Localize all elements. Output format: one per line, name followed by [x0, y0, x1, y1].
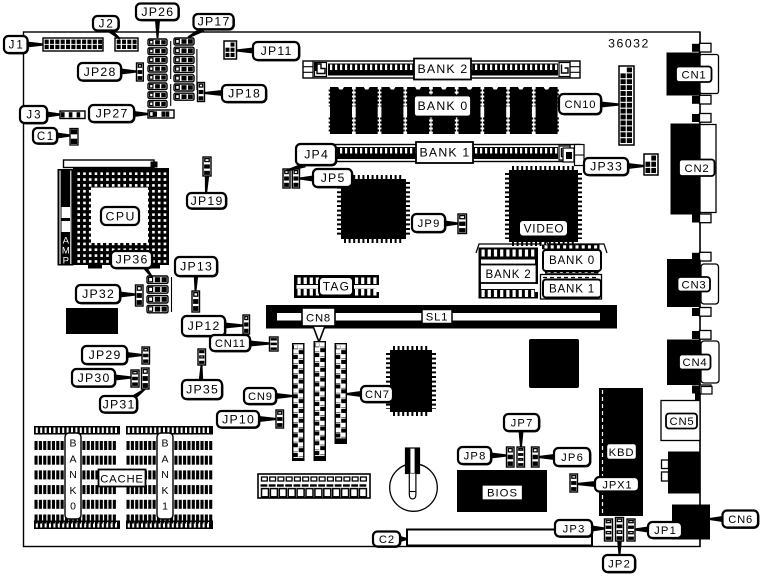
- svg-text:JP10: JP10: [222, 412, 255, 426]
- svg-text:JP28: JP28: [84, 65, 117, 79]
- svg-text:JP7: JP7: [511, 418, 534, 430]
- svg-text:JP27: JP27: [96, 107, 129, 121]
- svg-text:CN3: CN3: [682, 279, 707, 291]
- svg-text:JP5: JP5: [321, 171, 346, 185]
- svg-text:JP11: JP11: [261, 44, 293, 58]
- svg-text:B: B: [69, 438, 76, 450]
- svg-text:CN6: CN6: [728, 514, 753, 526]
- svg-text:JP29: JP29: [89, 348, 122, 362]
- svg-text:JP36: JP36: [116, 253, 149, 267]
- svg-text:C1: C1: [37, 131, 55, 143]
- svg-text:1: 1: [162, 501, 168, 513]
- svg-text:JP13: JP13: [180, 260, 213, 274]
- svg-text:JP12: JP12: [188, 319, 221, 333]
- svg-text:JP9: JP9: [418, 218, 441, 230]
- svg-text:JP32: JP32: [82, 287, 115, 301]
- svg-text:B: B: [161, 438, 168, 450]
- svg-text:JP1: JP1: [654, 525, 677, 537]
- svg-text:CN10: CN10: [564, 99, 596, 111]
- svg-text:JP18: JP18: [228, 87, 261, 101]
- svg-text:KBD: KBD: [609, 447, 635, 459]
- svg-text:CN1: CN1: [682, 69, 707, 81]
- svg-text:JP33: JP33: [590, 160, 623, 174]
- svg-text:JP8: JP8: [464, 451, 487, 463]
- svg-text:CN7: CN7: [365, 389, 390, 401]
- svg-text:CN11: CN11: [215, 338, 246, 350]
- svg-text:CN9: CN9: [248, 391, 273, 403]
- svg-text:BANK 2: BANK 2: [485, 268, 531, 281]
- svg-text:36032: 36032: [608, 37, 650, 51]
- svg-text:JP17: JP17: [198, 15, 231, 29]
- svg-text:J1: J1: [9, 40, 25, 52]
- svg-text:CN4: CN4: [683, 357, 708, 369]
- svg-text:JP30: JP30: [78, 371, 111, 385]
- svg-text:A: A: [161, 453, 168, 465]
- svg-text:CN8: CN8: [306, 312, 331, 324]
- svg-text:K: K: [161, 485, 168, 497]
- svg-text:VIDEO: VIDEO: [524, 222, 565, 236]
- svg-text:BANK 0: BANK 0: [549, 254, 595, 267]
- svg-text:TAG: TAG: [323, 280, 350, 294]
- svg-text:JP6: JP6: [561, 452, 584, 464]
- svg-text:JPX1: JPX1: [602, 479, 632, 491]
- svg-text:J2: J2: [99, 18, 115, 30]
- svg-text:BANK 1: BANK 1: [549, 283, 595, 296]
- svg-text:K: K: [69, 485, 76, 497]
- svg-text:BANK 0: BANK 0: [418, 99, 469, 113]
- svg-text:BIOS: BIOS: [487, 488, 518, 500]
- svg-text:C2: C2: [379, 534, 395, 546]
- svg-text:JP19: JP19: [191, 194, 224, 208]
- svg-text:CACHE: CACHE: [100, 473, 144, 485]
- svg-text:CN2: CN2: [685, 163, 710, 175]
- svg-text:P: P: [63, 256, 69, 267]
- svg-text:CPU: CPU: [105, 209, 135, 223]
- svg-text:JP4: JP4: [304, 148, 329, 162]
- svg-text:JP3: JP3: [563, 523, 586, 535]
- svg-text:N: N: [161, 469, 169, 481]
- svg-text:JP2: JP2: [608, 559, 631, 571]
- svg-text:JP35: JP35: [186, 383, 219, 397]
- svg-text:BANK 1: BANK 1: [420, 145, 471, 159]
- svg-text:JP26: JP26: [141, 5, 174, 19]
- svg-text:CN5: CN5: [670, 416, 695, 428]
- svg-text:A: A: [69, 453, 76, 465]
- svg-text:N: N: [69, 469, 77, 481]
- svg-text:J3: J3: [26, 110, 42, 122]
- svg-text:0: 0: [70, 501, 76, 513]
- svg-text:BANK 2: BANK 2: [418, 62, 469, 76]
- svg-text:JP31: JP31: [103, 397, 136, 411]
- svg-text:SL1: SL1: [426, 312, 449, 324]
